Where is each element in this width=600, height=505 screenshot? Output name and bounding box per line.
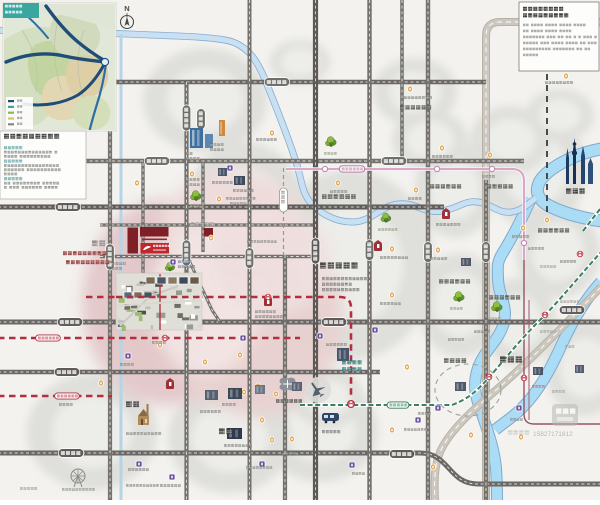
svg-text:N: N: [124, 4, 129, 13]
svg-text:15827171812: 15827171812: [533, 431, 573, 438]
